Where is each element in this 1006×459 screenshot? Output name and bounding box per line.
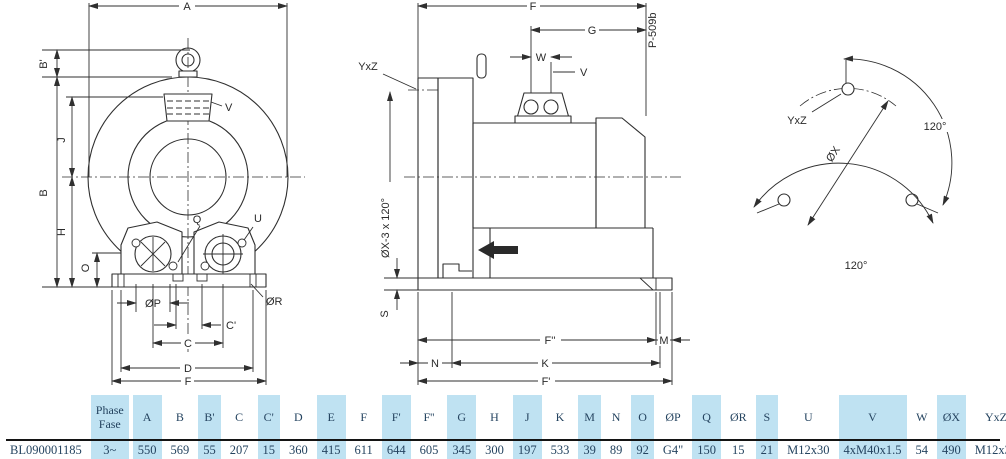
dim-label-w: W (536, 52, 547, 64)
column-value: 92 (631, 439, 654, 459)
column-header: G (457, 410, 466, 424)
column-header-group: PhaseFase (91, 395, 129, 439)
column-header-group: ØX (937, 395, 966, 439)
column-header-group: S (756, 395, 779, 439)
column-header-group: B (166, 395, 195, 439)
dim-label-u: U (254, 213, 262, 225)
terminal-box (515, 93, 571, 123)
column-value: 197 (513, 439, 542, 459)
column-header: Fase (99, 417, 121, 431)
column-header: C' (264, 410, 274, 424)
table-column: YxZ M12x30 (968, 395, 1006, 459)
column-header: F (360, 410, 367, 424)
column-header: D (294, 410, 303, 424)
column-header-group: G (447, 395, 476, 439)
table-column: G 345 (445, 395, 478, 459)
dim-label-c: C (184, 338, 192, 350)
table-column: K 533 (544, 395, 577, 459)
column-header: YxZ (985, 410, 1006, 424)
column-header: ØP (665, 410, 680, 424)
table-column: C 207 (223, 395, 256, 459)
model-number: BL090001185 (8, 439, 87, 459)
column-value: 345 (447, 439, 476, 459)
column-header-group: ØR (725, 395, 752, 439)
column-header-group: V (839, 395, 907, 439)
column-header-group: A (133, 395, 162, 439)
table-column: D 360 (282, 395, 315, 459)
fan-cover (596, 118, 645, 228)
flange-bolt-circle-view: ØX YxZ 120° 120° (754, 59, 953, 272)
blower-body-side (404, 54, 682, 290)
table-header-rule (6, 439, 1000, 441)
table-column: J 197 (511, 395, 544, 459)
column-header-group: ØP (658, 395, 688, 439)
motor (473, 123, 596, 228)
cable-gland-front (164, 94, 212, 121)
column-value: M12x30 (970, 439, 1006, 459)
dim-label-yxz-side: YxZ (358, 61, 378, 73)
dim-label-b: B (38, 189, 50, 196)
column-value: 89 (605, 439, 628, 459)
column-header: V (868, 410, 877, 424)
dim-label-q: Q (193, 214, 202, 226)
column-value: 605 (415, 439, 444, 459)
table-column: O 92 (629, 395, 656, 459)
dim-label-s: S (379, 310, 391, 317)
column-header-group: J (513, 395, 542, 439)
column-header: Phase (96, 403, 124, 417)
table-column: B 569 (164, 395, 197, 459)
bolt-hole-right (906, 194, 918, 206)
table-column: F' 644 (380, 395, 413, 459)
column-header: B' (204, 410, 214, 424)
dim-label-g: G (588, 25, 597, 37)
blower-dimensional-drawing-page: A B' B J H O V (0, 0, 1006, 459)
bolt-hole-top (842, 83, 854, 95)
column-header-group: C (225, 395, 254, 439)
column-header-group: F' (382, 395, 411, 439)
column-header-group: C' (258, 395, 281, 439)
column-header: Q (702, 410, 711, 424)
dim-label-c-prime: C' (226, 320, 236, 332)
port-left (135, 236, 171, 272)
column-value: 207 (225, 439, 254, 459)
table-column: N 89 (603, 395, 630, 459)
column-header: H (490, 410, 499, 424)
table-column: Q 150 (690, 395, 723, 459)
column-header-group: Q (692, 395, 721, 439)
column-header: F'' (423, 410, 434, 424)
dim-label-h: H (56, 228, 68, 236)
column-value: 611 (350, 439, 378, 459)
column-header: B (176, 410, 184, 424)
bolt-hole-left (778, 194, 790, 206)
column-value: 39 (578, 439, 601, 459)
column-header: S (764, 410, 771, 424)
column-header-group: N (605, 395, 628, 439)
column-header: U (804, 410, 813, 424)
table-column: F 611 (348, 395, 380, 459)
side-view: F P-509b G W V (358, 0, 690, 388)
table-column: ØP G4" (656, 395, 690, 459)
column-header-group: F'' (415, 395, 444, 439)
dim-label-j: J (56, 137, 68, 143)
column-header-group (8, 395, 87, 439)
column-value: 15 (725, 439, 752, 459)
table-column-model: BL090001185 (6, 395, 89, 459)
column-header: ØX (943, 410, 960, 424)
dim-label-v-front: V (225, 102, 233, 114)
dim-label-a: A (183, 1, 191, 13)
column-value: 55 (198, 439, 221, 459)
dim-label-f-side: F (530, 1, 537, 13)
column-header-group: U (782, 395, 834, 439)
column-value: 150 (692, 439, 721, 459)
column-header-group: H (480, 395, 509, 439)
dim-label-ox3: ØX-3 x 120° (380, 198, 392, 258)
dimension-table: BL090001185 PhaseFase 3~ A 550 B 569 B' … (6, 395, 1000, 459)
column-value: 533 (546, 439, 575, 459)
table-column: B' 55 (196, 395, 223, 459)
table-column: F'' 605 (413, 395, 446, 459)
column-header-group: K (546, 395, 575, 439)
dim-label-angle-right: 120° (924, 121, 947, 133)
dim-label-or: ØR (266, 296, 283, 308)
column-header-group: W (911, 395, 934, 439)
column-value: 4xM40x1.5 (839, 439, 907, 459)
drawing-code: P-509b (647, 13, 659, 48)
dim-label-angle-bottom: 120° (845, 260, 868, 272)
column-header: O (638, 410, 647, 424)
dim-label-yxz-flange: YxZ (787, 115, 807, 127)
table-column: A 550 (131, 395, 164, 459)
column-header-group: B' (198, 395, 221, 439)
column-header-group: YxZ (970, 395, 1006, 439)
dim-label-n: N (431, 358, 439, 370)
column-value: 3~ (91, 439, 129, 459)
column-value: 54 (911, 439, 934, 459)
dim-label-o: O (80, 263, 92, 272)
column-header: W (916, 410, 927, 424)
table-column: E 415 (315, 395, 348, 459)
column-value: 300 (480, 439, 509, 459)
column-header: ØR (730, 410, 747, 424)
column-header: K (556, 410, 565, 424)
column-value: 644 (382, 439, 411, 459)
base-slab (112, 274, 266, 287)
column-value: 360 (284, 439, 313, 459)
front-view: A B' B J H O V (38, 0, 305, 388)
column-value: G4" (658, 439, 688, 459)
table-column: ØR 15 (723, 395, 754, 459)
mounting-feet (112, 222, 266, 287)
column-value: 550 (133, 439, 162, 459)
dim-label-ox: ØX (824, 144, 843, 164)
column-header-group: O (631, 395, 654, 439)
dim-label-d: D (184, 363, 192, 375)
technical-drawing: A B' B J H O V (0, 0, 1006, 388)
column-header: M (584, 410, 595, 424)
table-column: PhaseFase 3~ (89, 395, 131, 459)
column-header: E (327, 410, 334, 424)
dim-label-b-prime: B' (38, 59, 50, 68)
column-header: C (235, 410, 243, 424)
table-column: H 300 (478, 395, 511, 459)
airflow-arrow-icon (478, 241, 518, 259)
dim-label-f-dprime: F'' (545, 335, 556, 347)
dim-label-f-prime: F' (542, 376, 551, 388)
table-column: U M12x30 (780, 395, 836, 459)
column-value: M12x30 (782, 439, 834, 459)
table-column: V 4xM40x1.5 (837, 395, 909, 459)
column-header-group: M (578, 395, 601, 439)
column-header: N (612, 410, 621, 424)
dim-label-m: M (659, 335, 668, 347)
column-header-group: F (350, 395, 378, 439)
column-header: A (143, 410, 152, 424)
column-value: 21 (756, 439, 779, 459)
column-header: F' (392, 410, 401, 424)
column-value: 15 (258, 439, 281, 459)
table-column: W 54 (909, 395, 936, 459)
column-header-group: E (317, 395, 346, 439)
column-value: 569 (166, 439, 195, 459)
column-value: 490 (937, 439, 966, 459)
table-column: C' 15 (256, 395, 283, 459)
dim-label-k: K (541, 358, 549, 370)
column-header: J (525, 410, 530, 424)
base-plate (418, 278, 672, 290)
column-header-group: D (284, 395, 313, 439)
column-value: 415 (317, 439, 346, 459)
dim-label-f-front: F (185, 376, 192, 388)
dim-label-v-side: V (580, 67, 588, 79)
table-column: ØX 490 (935, 395, 968, 459)
table-column: S 21 (754, 395, 781, 459)
table-column: M 39 (576, 395, 603, 459)
